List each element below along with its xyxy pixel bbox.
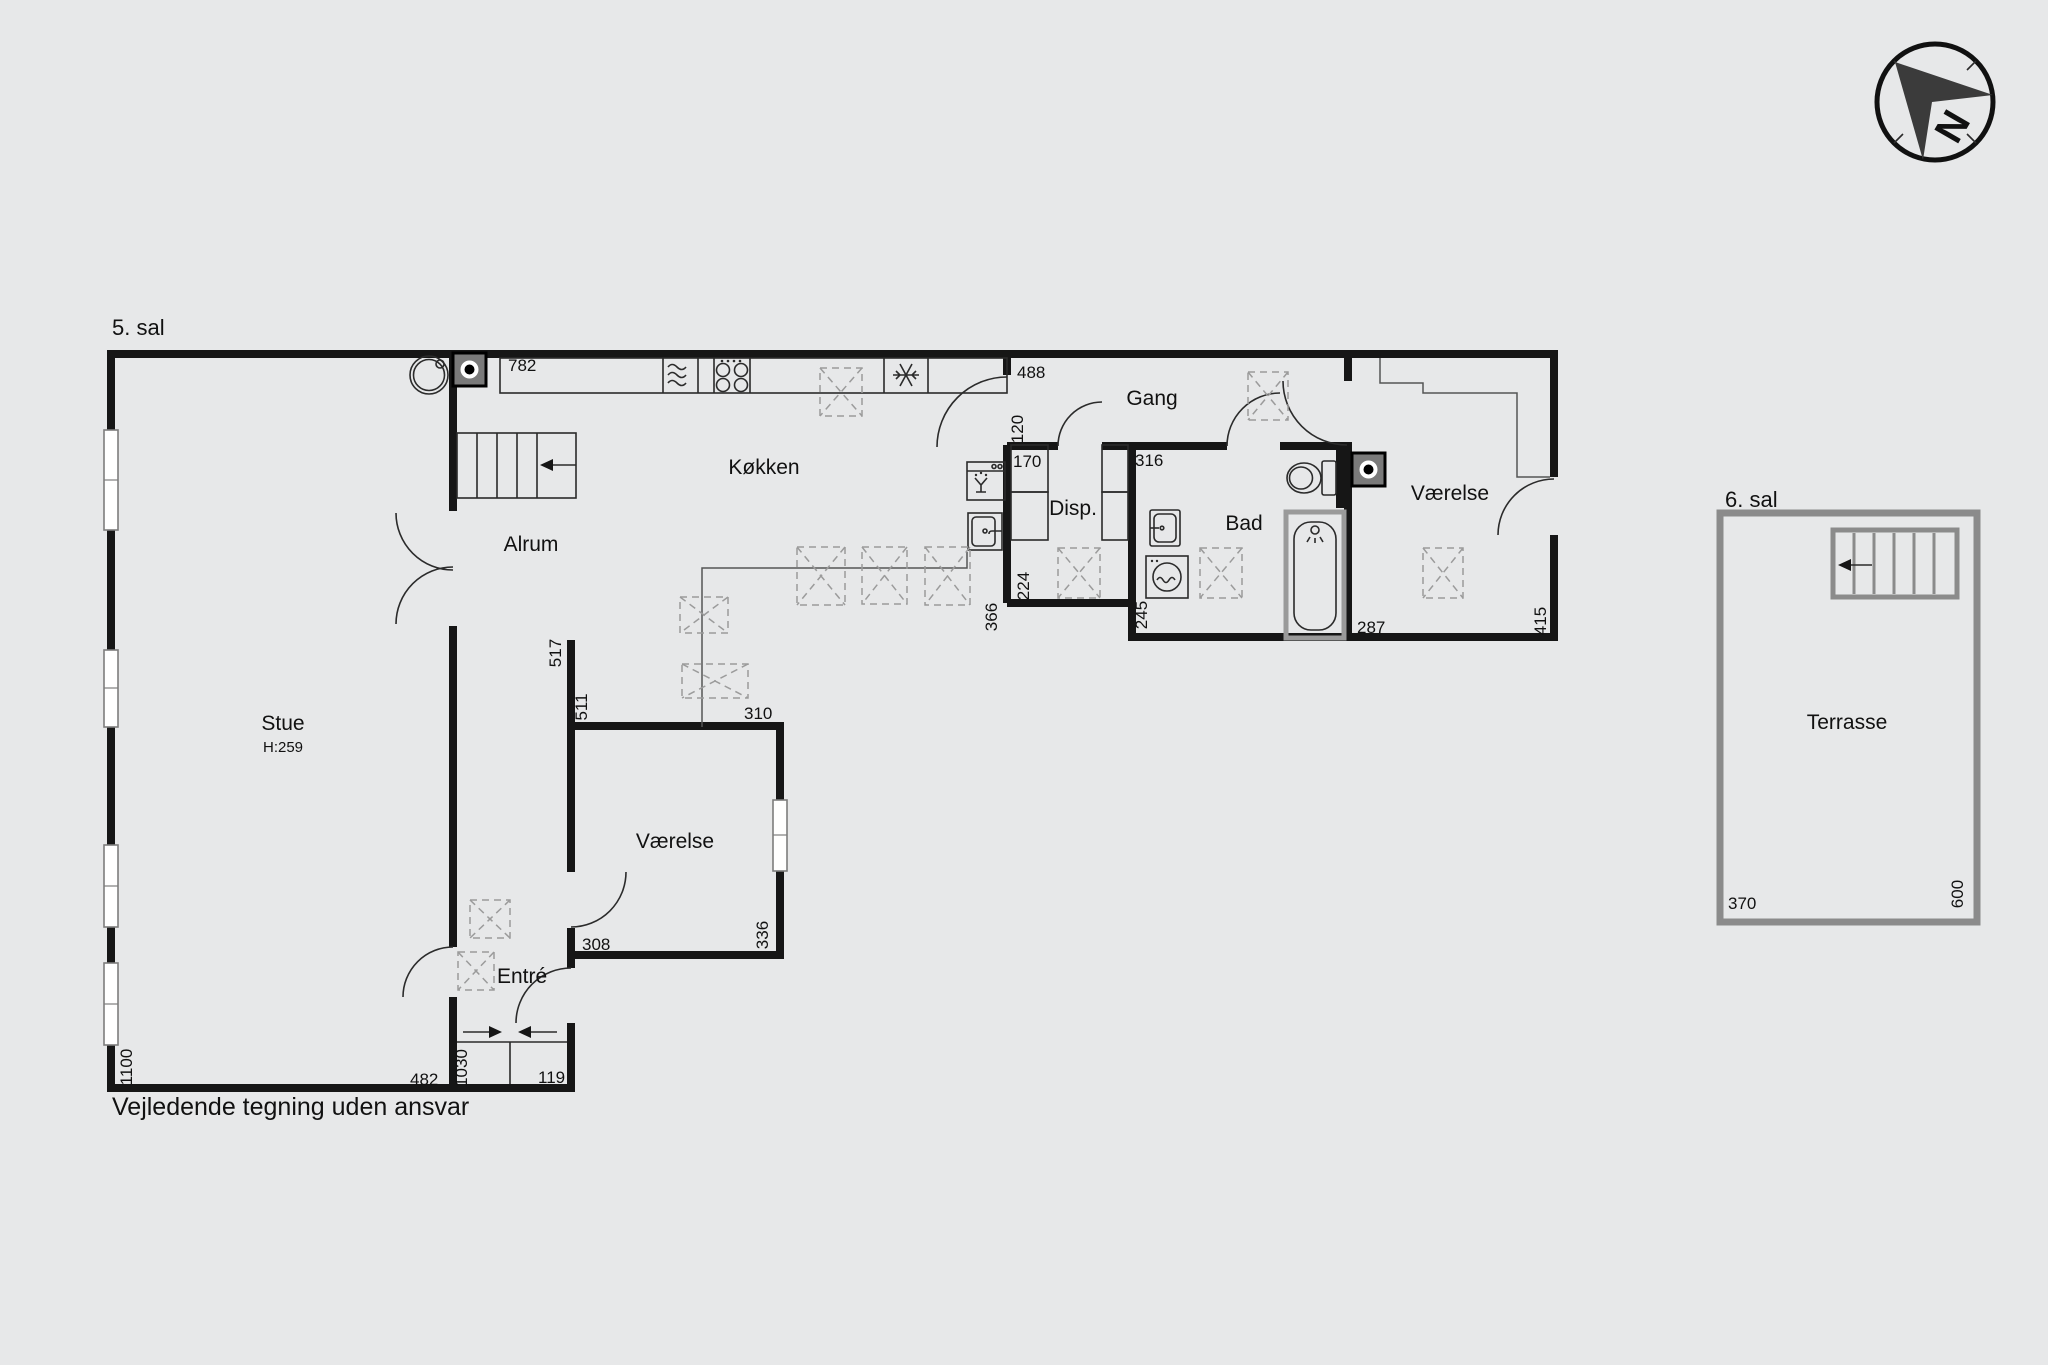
stove-icon: [717, 360, 748, 392]
dim-1030: 1030: [452, 1049, 471, 1087]
bad-sink-icon: [1150, 510, 1180, 546]
dashed-box-disp: [1058, 548, 1100, 598]
dim-336: 336: [753, 921, 772, 949]
room-label-stue: Stue: [261, 712, 304, 735]
roof-slope-lines: [702, 358, 1550, 727]
dim-782: 782: [508, 356, 536, 375]
dim-224: 224: [1014, 572, 1033, 600]
dashed-box-bad: [1200, 548, 1242, 598]
dim-245: 245: [1132, 601, 1151, 629]
dashed-box-corridor-2: [682, 664, 748, 698]
door-arc-vaerelse-east: [1283, 381, 1347, 445]
floorplan-canvas: 5. sal Stue H:259 Alrum Køkken Gang Disp…: [0, 0, 2048, 1365]
room-label-vaerelse-south: Værelse: [636, 830, 714, 853]
dim-1100: 1100: [117, 1049, 136, 1086]
room-label-entre: Entré: [497, 965, 547, 988]
dim-370: 370: [1728, 894, 1756, 913]
room-label-disp: Disp.: [1049, 497, 1097, 520]
slope-line-kokken: [702, 552, 967, 727]
dim-119: 119: [538, 1068, 565, 1087]
wall-chunk-bad: [1336, 446, 1352, 508]
wood-stove-icon: [410, 356, 448, 394]
floor5-plan: 5. sal Stue H:259 Alrum Køkken Gang Disp…: [104, 315, 1558, 1092]
dashed-furniture: [458, 368, 1463, 990]
kitchen-sink-icon: [968, 513, 1002, 550]
dim-600: 600: [1948, 880, 1967, 908]
dashed-box-gang: [1248, 372, 1288, 420]
dashed-box-kokken-2: [862, 547, 907, 604]
dim-366: 366: [982, 603, 1001, 631]
door-arc-terrace-door: [1498, 479, 1554, 535]
dashed-box-entre-2: [458, 952, 494, 990]
room-label-stue-height: H:259: [263, 739, 303, 756]
entry-arrow-right: [489, 1026, 502, 1038]
dashed-box-vaerelse-east: [1423, 548, 1463, 598]
door-arc-stue-double-lower: [396, 567, 453, 624]
dim-170: 170: [1013, 452, 1041, 471]
dim-120: 120: [1008, 415, 1027, 443]
room-label-vaerelse-east: Værelse: [1411, 482, 1489, 505]
door-arc-stue-entre: [403, 947, 453, 997]
chimney-shaft-kitchen: [453, 353, 486, 386]
dim-308: 308: [582, 935, 610, 954]
kitchen-counter: [500, 358, 1007, 393]
door-arc-disp: [1058, 402, 1102, 446]
washing-machine-icon: [1146, 556, 1188, 598]
stair-5sal: [457, 433, 576, 498]
room-label-alrum: Alrum: [504, 533, 559, 556]
door-arc-stue-double-upper: [396, 513, 453, 570]
freezer-snowflake-icon: [893, 364, 919, 386]
dashed-box-corridor-1: [680, 597, 728, 633]
counter-outline: [500, 358, 1007, 393]
stair6-direction-arrow: [1838, 559, 1851, 571]
toilet-icon: [1287, 461, 1336, 495]
slope-line-vaerelse-east: [1380, 358, 1550, 477]
room-label-gang: Gang: [1126, 387, 1177, 410]
entry-arrow-left: [518, 1026, 531, 1038]
floor6-plan: 6. sal Terrasse 370 600: [1720, 487, 1977, 922]
floor6-title: 6. sal: [1725, 487, 1778, 512]
dashed-box-kokken-1: [797, 547, 845, 605]
stair-6sal: [1833, 530, 1957, 597]
dishwasher-icon: [967, 462, 1005, 500]
door-arc-vaerelse-south: [571, 872, 626, 927]
dashed-box-kokken-3: [925, 547, 970, 605]
dashed-box-entre-1: [470, 900, 510, 938]
chimney-shaft-bad: [1352, 453, 1385, 486]
counter-dividers: [663, 358, 928, 393]
room-label-bad: Bad: [1225, 512, 1262, 535]
dim-415: 415: [1531, 607, 1550, 635]
dim-310: 310: [744, 704, 772, 723]
walls: [107, 350, 1558, 1092]
stair-direction-arrow: [540, 459, 553, 471]
microwave-icon: [668, 365, 686, 386]
room-label-terrasse: Terrasse: [1807, 711, 1888, 734]
room-label-kokken: Køkken: [728, 456, 799, 479]
disclaimer-text: Vejledende tegning uden ansvar: [112, 1093, 469, 1121]
bathtub-icon: [1286, 512, 1344, 638]
dim-517: 517: [546, 639, 565, 667]
dim-482: 482: [410, 1070, 438, 1089]
dim-488: 488: [1017, 363, 1045, 382]
door-arc-kokken: [937, 377, 1007, 447]
compass: N: [1877, 44, 1993, 160]
dim-316: 316: [1135, 451, 1163, 470]
dim-287: 287: [1357, 618, 1385, 637]
dimension-labels: 782 488 120 170 316 366 224 245 287 415 …: [117, 356, 1550, 1089]
dim-511: 511: [572, 693, 591, 720]
compass-north-letter: N: [1927, 103, 1980, 150]
floor5-title: 5. sal: [112, 315, 165, 340]
dashed-box-counter: [820, 368, 862, 416]
